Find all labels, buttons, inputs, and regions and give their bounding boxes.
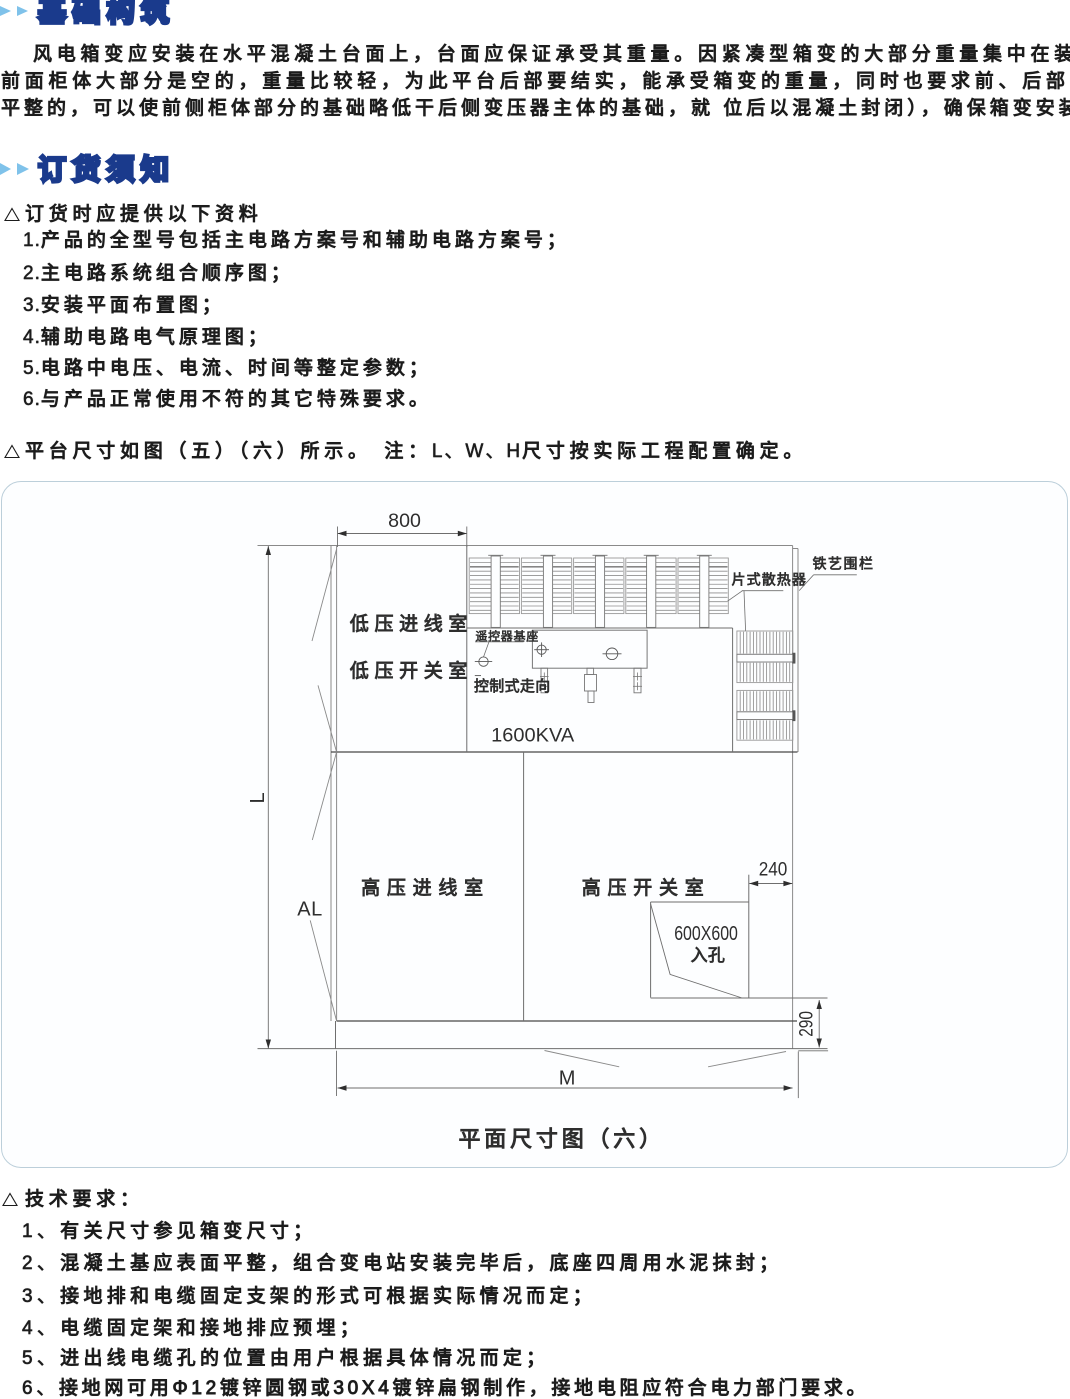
- svg-text:控制式走向: 控制式走向: [474, 678, 551, 695]
- svg-text:M: M: [559, 1068, 576, 1090]
- svg-text:1600KVA: 1600KVA: [491, 725, 574, 746]
- svg-text:入孔: 入孔: [691, 946, 726, 965]
- svg-text:遥控器基座: 遥控器基座: [475, 628, 539, 643]
- svg-text:高压进线室: 高压进线室: [361, 877, 490, 899]
- svg-text:AL: AL: [297, 899, 322, 921]
- svg-text:290: 290: [797, 1011, 818, 1037]
- svg-text:L: L: [247, 792, 269, 803]
- svg-text:800: 800: [388, 511, 421, 532]
- svg-text:铁艺围栏: 铁艺围栏: [813, 555, 875, 571]
- svg-text:高压开关室: 高压开关室: [582, 877, 711, 899]
- svg-text:低压开关室: 低压开关室: [350, 660, 473, 682]
- svg-text:片式散热器: 片式散热器: [732, 571, 808, 587]
- svg-text:低压进线室: 低压进线室: [350, 613, 473, 635]
- svg-text:平面尺寸图（六）: 平面尺寸图（六）: [459, 1126, 665, 1151]
- svg-text:600X600: 600X600: [674, 923, 738, 945]
- svg-text:240: 240: [759, 859, 788, 880]
